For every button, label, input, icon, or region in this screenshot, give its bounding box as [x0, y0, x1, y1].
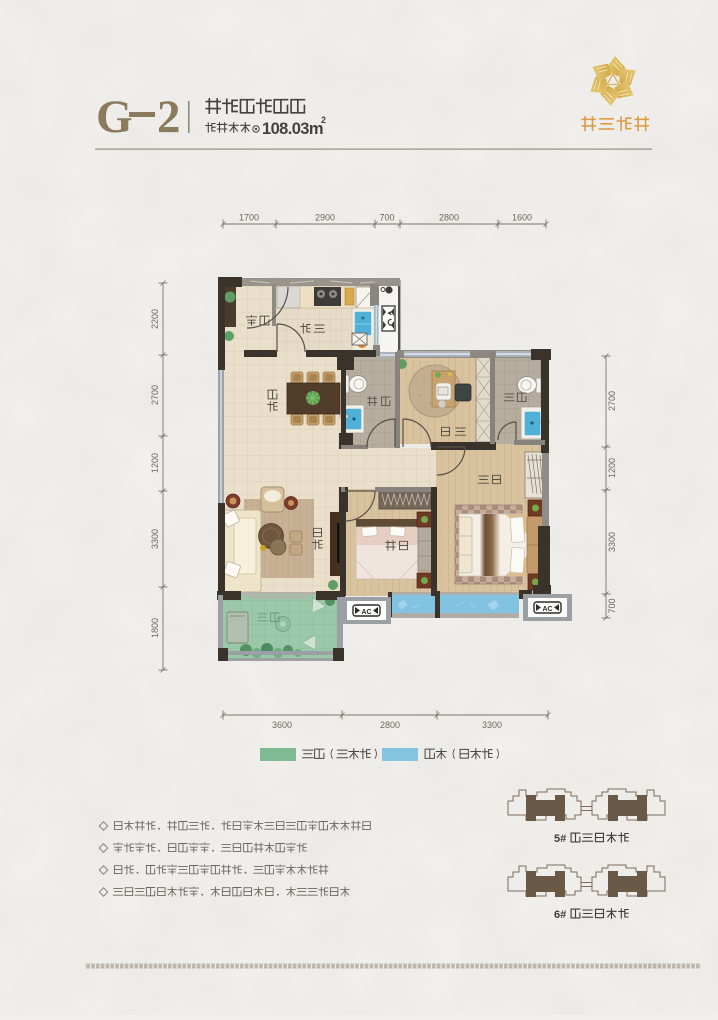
svg-text:6#: 6#: [554, 909, 566, 921]
svg-text:700: 700: [379, 213, 394, 223]
svg-text:2700: 2700: [607, 391, 617, 411]
svg-text:1200: 1200: [150, 453, 160, 473]
svg-text:2800: 2800: [380, 720, 400, 730]
svg-text:108.03m: 108.03m: [262, 120, 323, 138]
svg-text:AC: AC: [542, 606, 552, 613]
svg-text:1700: 1700: [239, 213, 259, 223]
svg-text:2700: 2700: [150, 385, 160, 405]
svg-text:3300: 3300: [482, 720, 502, 730]
svg-text:2: 2: [321, 115, 326, 125]
svg-text:2900: 2900: [315, 213, 335, 223]
svg-text:AC: AC: [361, 609, 371, 616]
svg-text:2: 2: [157, 91, 181, 143]
svg-text:2200: 2200: [150, 309, 160, 329]
svg-text:2800: 2800: [439, 213, 459, 223]
svg-text:1600: 1600: [512, 213, 532, 223]
svg-text:1200: 1200: [607, 458, 617, 478]
svg-text:5#: 5#: [554, 833, 566, 845]
svg-text:3300: 3300: [150, 529, 160, 549]
svg-text:3600: 3600: [272, 720, 292, 730]
svg-text:700: 700: [607, 598, 617, 613]
svg-text:1800: 1800: [150, 618, 160, 638]
svg-text:3300: 3300: [607, 532, 617, 552]
svg-text:G: G: [96, 91, 133, 143]
